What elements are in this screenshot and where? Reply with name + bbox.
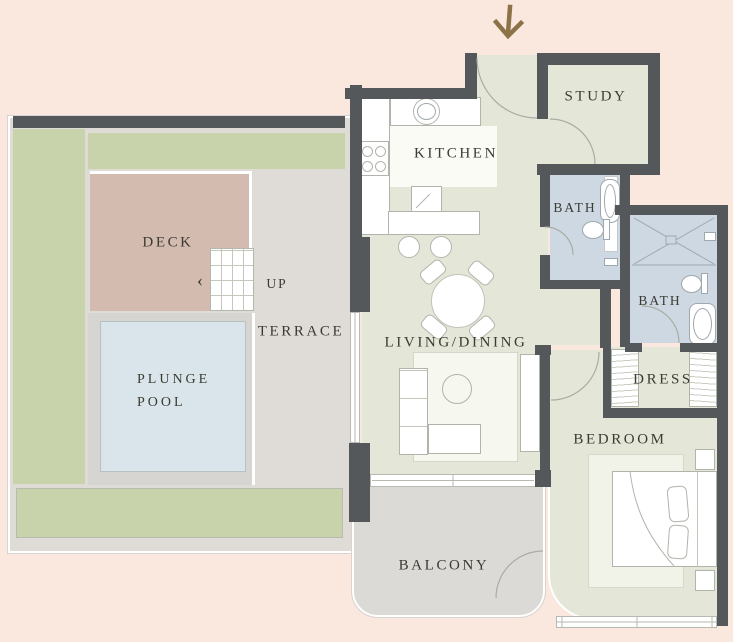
study-floor	[548, 63, 648, 164]
bed	[612, 471, 717, 567]
nightstand	[695, 570, 715, 591]
wall-shaft-left	[600, 285, 611, 348]
plunge-pool-label: PLUNGE POOL	[137, 368, 210, 414]
stairs-direction-chevron: ‹	[197, 270, 203, 291]
wall-bath-lower-bottom-b	[680, 343, 717, 352]
bedroom-label: BEDROOM	[573, 432, 666, 449]
burner	[362, 146, 373, 157]
greenery-strip-left	[13, 129, 85, 484]
toilet-tank	[701, 273, 708, 294]
pillow	[666, 485, 689, 523]
wall-entry-jamb	[465, 53, 477, 99]
wall-kitchen-top	[345, 88, 473, 99]
kitchen-label: KITCHEN	[414, 146, 498, 163]
bar-stool	[430, 236, 452, 258]
plunge-pool-label-line2: POOL	[137, 391, 210, 414]
wall-bath-divider	[620, 164, 630, 347]
wall-dress-left	[603, 348, 611, 410]
nightstand	[695, 449, 715, 470]
wardrobe	[689, 349, 717, 407]
wall-study-bottom	[537, 164, 660, 175]
burner	[375, 146, 386, 157]
burner	[362, 161, 373, 172]
bar-stool	[398, 236, 420, 258]
wall-study-right	[648, 53, 660, 175]
pillow	[667, 524, 689, 559]
stove	[358, 141, 389, 176]
wall-bath-lower-top	[615, 205, 727, 215]
wall-living-bottom-stub	[535, 470, 551, 487]
breakfast-bar	[388, 211, 480, 235]
wall-kitchen-left-pier	[350, 237, 370, 312]
wall-bath-upper-left-a	[540, 175, 550, 227]
bath-upper-label: BATH	[553, 200, 596, 216]
wall-bath-upper-bottom	[540, 280, 630, 289]
sofa-back	[399, 368, 428, 455]
wall-bedroom-left	[540, 345, 550, 485]
wall-bath-lower-bottom-a	[625, 343, 642, 352]
entry-floor	[473, 55, 539, 99]
greenery-strip-bottom	[16, 488, 343, 538]
wall-corridor-stub	[535, 345, 551, 355]
tv-console	[520, 354, 540, 452]
dress-label: DRESS	[633, 372, 693, 389]
kitchen-sink	[413, 98, 440, 125]
corridor-floor	[545, 288, 602, 345]
shower-head-icon	[704, 232, 716, 241]
wall-study-left-stub	[537, 53, 548, 119]
wall-dress-bottom	[603, 408, 728, 418]
wall-terrace-top	[13, 116, 345, 128]
balcony-window	[370, 474, 536, 487]
toilet-bowl	[681, 275, 702, 293]
terrace-label: TERRACE	[258, 324, 345, 341]
balcony-floor	[352, 478, 545, 617]
bedroom-window	[556, 616, 717, 628]
wall-study-top	[537, 53, 660, 65]
deck-label: DECK	[142, 235, 193, 252]
coffee-table	[442, 374, 472, 404]
wall-living-left	[349, 443, 370, 522]
toilet-tank	[603, 219, 610, 240]
greenery-strip-top	[88, 133, 345, 169]
living-side-window	[350, 312, 360, 443]
up-label: UP	[266, 276, 287, 292]
bed-head-divider	[697, 472, 698, 566]
bathtub	[689, 303, 716, 345]
burner	[375, 161, 386, 172]
bath-lower-label: BATH	[638, 293, 681, 309]
towel-rail	[604, 258, 618, 266]
plunge-pool-label-line1: PLUNGE	[137, 368, 210, 391]
toilet-bowl	[582, 221, 604, 239]
wall-kitchen-left	[350, 85, 362, 237]
entrance-arrow-icon	[496, 7, 521, 36]
living-dining-label: LIVING/DINING	[385, 335, 528, 352]
sofa-seat	[428, 424, 481, 454]
floorplan: ‹	[0, 0, 733, 642]
stairs	[210, 248, 254, 311]
balcony-label: BALCONY	[399, 558, 490, 575]
bathroom-sink	[600, 179, 620, 223]
study-label: STUDY	[564, 89, 627, 106]
